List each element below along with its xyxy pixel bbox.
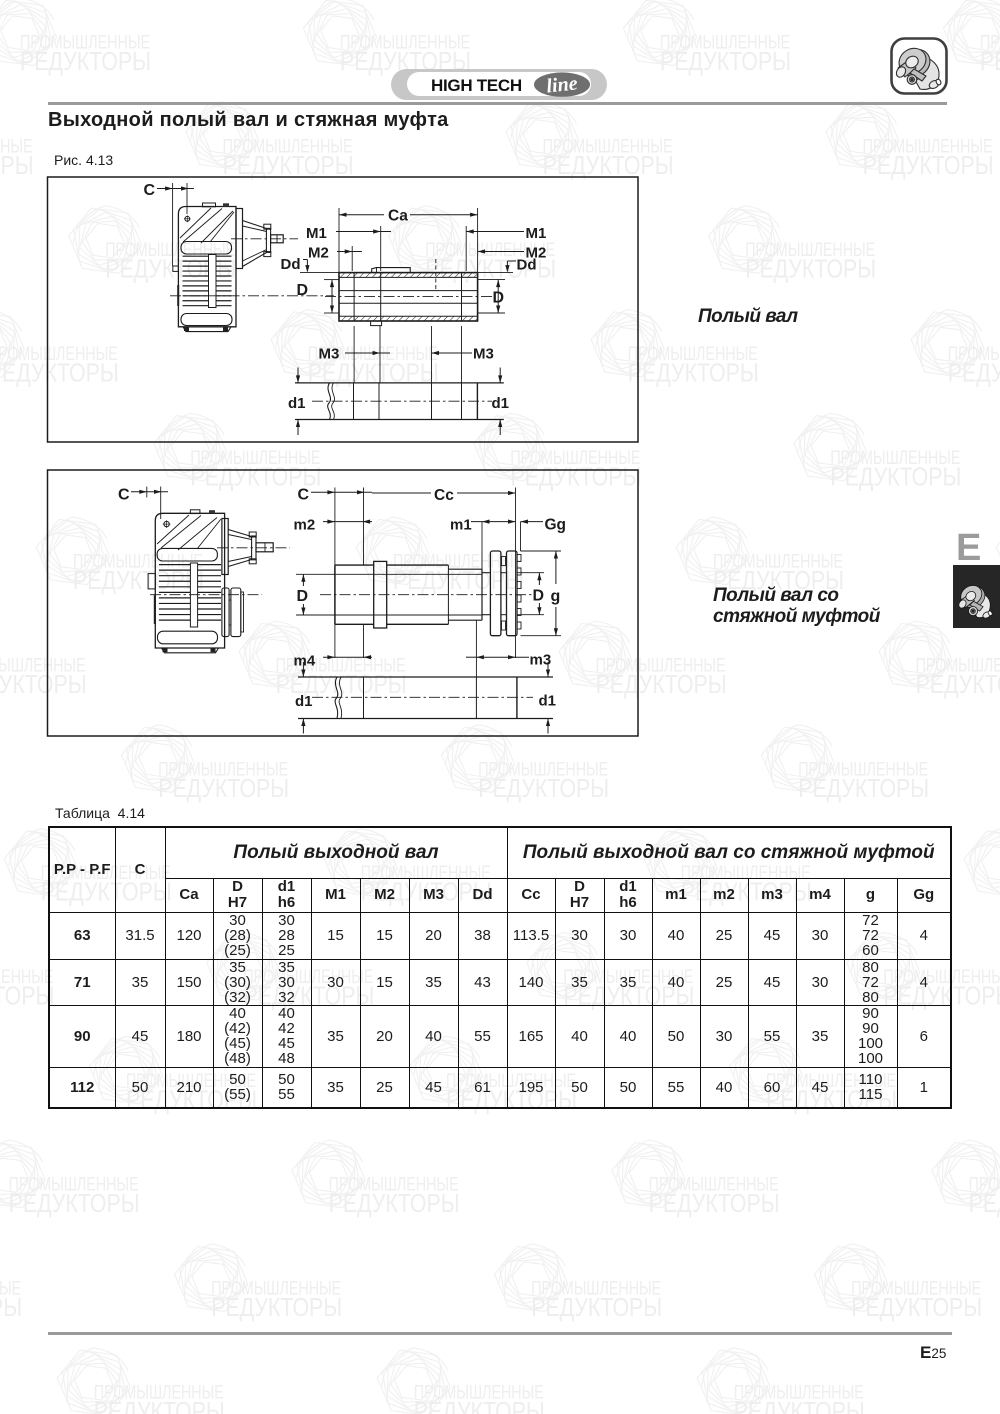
svg-text:d1: d1 bbox=[492, 395, 510, 412]
svg-text:d1: d1 bbox=[539, 693, 557, 710]
svg-text:D: D bbox=[297, 588, 309, 605]
svg-text:d1: d1 bbox=[295, 693, 313, 710]
svg-text:D: D bbox=[533, 588, 545, 605]
svg-text:Ca: Ca bbox=[388, 208, 408, 225]
svg-text:m1: m1 bbox=[450, 517, 472, 534]
svg-text:Dd: Dd bbox=[281, 256, 301, 273]
svg-text:M1: M1 bbox=[526, 225, 547, 242]
svg-text:D: D bbox=[297, 282, 309, 299]
svg-text:C: C bbox=[118, 487, 130, 504]
svg-text:g: g bbox=[551, 588, 561, 605]
svg-text:C: C bbox=[144, 182, 156, 199]
svg-text:Dd: Dd bbox=[517, 257, 537, 274]
svg-text:M1: M1 bbox=[306, 225, 327, 242]
svg-text:C: C bbox=[298, 487, 310, 504]
svg-text:Gg: Gg bbox=[545, 517, 567, 534]
svg-text:d1: d1 bbox=[288, 395, 306, 412]
svg-text:M3: M3 bbox=[319, 346, 340, 363]
svg-text:M3: M3 bbox=[473, 346, 494, 363]
svg-text:Cc: Cc bbox=[434, 487, 454, 504]
svg-text:m2: m2 bbox=[294, 516, 316, 533]
svg-text:M2: M2 bbox=[308, 245, 329, 262]
svg-text:m4: m4 bbox=[294, 653, 316, 670]
